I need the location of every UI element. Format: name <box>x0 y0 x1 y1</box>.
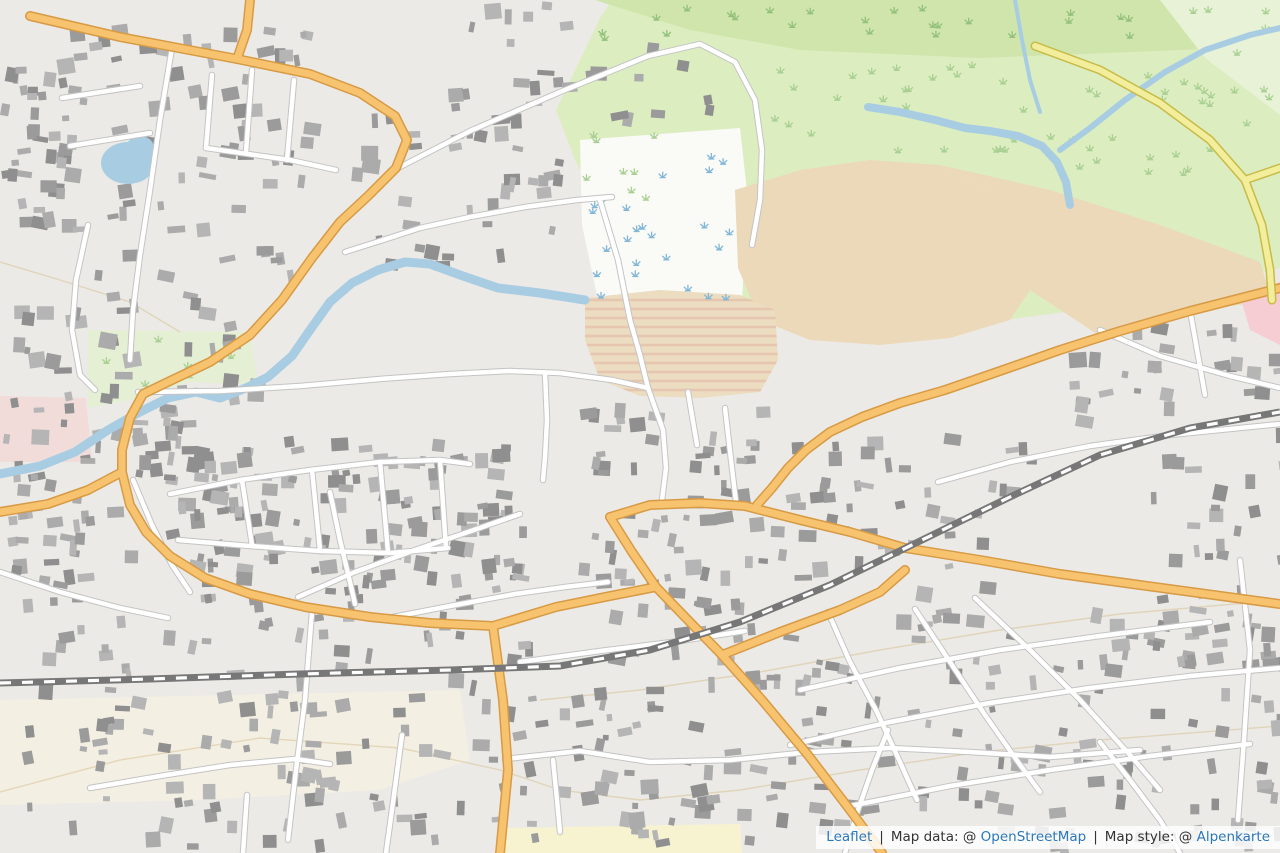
leaflet-link[interactable]: Leaflet <box>826 829 872 845</box>
alpenkarte-link[interactable]: Alpenkarte <box>1197 829 1270 845</box>
map-tiles <box>0 0 1280 853</box>
openstreetmap-link[interactable]: OpenStreetMap <box>981 829 1087 845</box>
map-canvas[interactable]: Leaflet|Map data: @ OpenStreetMap|Map st… <box>0 0 1280 853</box>
attribution-separator: | <box>879 829 884 845</box>
map-data-label: Map data: @ <box>891 829 977 845</box>
map-style-label: Map style: @ <box>1105 829 1193 845</box>
attribution-separator: | <box>1093 829 1098 845</box>
attribution-bar: Leaflet|Map data: @ OpenStreetMap|Map st… <box>816 826 1280 849</box>
